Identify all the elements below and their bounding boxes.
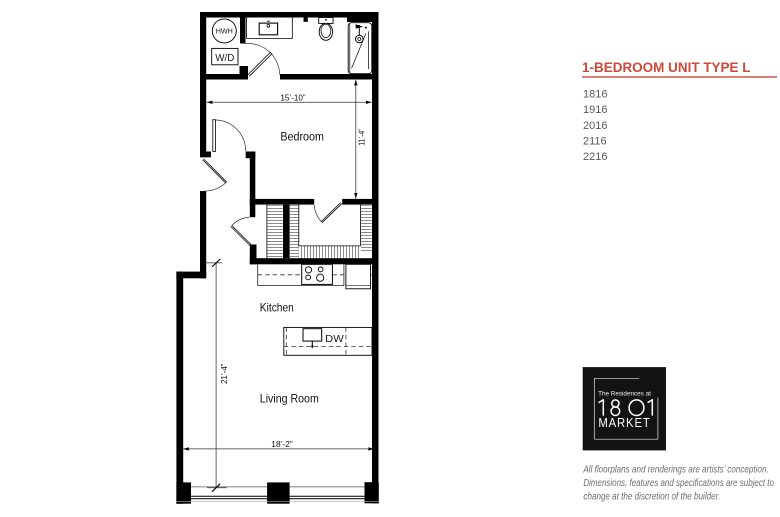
svg-text:change at the discretion of th: change at the discretion of the builder. [583,492,720,503]
svg-text:All floorplans and renderings: All floorplans and renderings are artist… [583,465,769,476]
svg-text:Living Room: Living Room [260,391,319,405]
svg-text:2216: 2216 [583,151,607,163]
svg-text:1816: 1816 [583,89,607,101]
svg-text:15’-10”: 15’-10” [280,93,305,103]
svg-text:1916: 1916 [583,104,607,116]
svg-text:1-BEDROOM UNIT TYPE L: 1-BEDROOM UNIT TYPE L [582,60,751,75]
svg-text:Dimensions, features and speci: Dimensions, features and specifications … [583,478,774,489]
svg-text:Kitchen: Kitchen [260,301,294,315]
svg-text:11’-4”: 11’-4” [357,128,367,145]
svg-text:Bedroom: Bedroom [280,129,324,143]
svg-text:The Residences at: The Residences at [598,390,651,397]
svg-text:2016: 2016 [583,120,607,132]
svg-text:18’-2”: 18’-2” [271,439,293,449]
svg-text:21’-4”: 21’-4” [219,363,229,384]
svg-text:MARKET: MARKET [598,415,650,430]
svg-text:W/D: W/D [215,53,234,64]
svg-text:2116: 2116 [583,135,607,147]
svg-text:HWH: HWH [216,27,233,36]
svg-text:DW: DW [325,334,344,345]
